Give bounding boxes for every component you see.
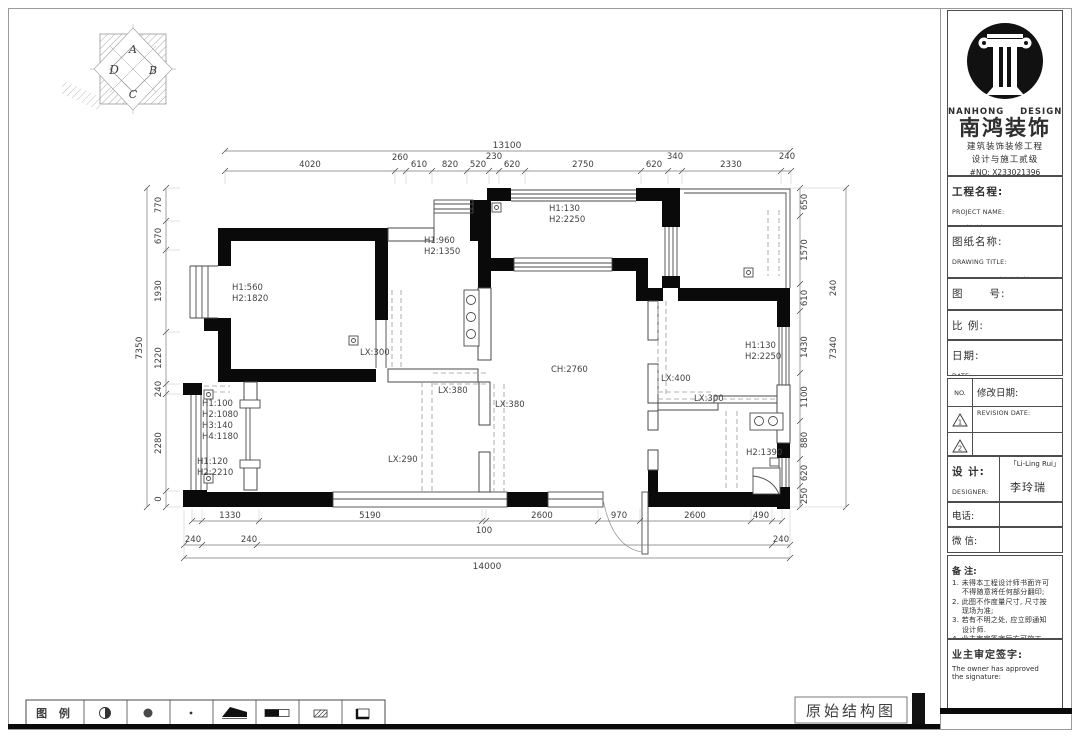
dim-label: 670 <box>154 228 164 244</box>
dim-label: 7350 <box>135 336 145 359</box>
tel-label-cn: 电话: <box>952 511 974 522</box>
note-line: 2. 此图不作度量尺寸, 尺寸按 <box>952 597 1058 606</box>
room-label: H4:1180 <box>202 432 238 442</box>
dim-label: 240 <box>773 535 789 545</box>
room-label: H2:1350 <box>424 247 460 257</box>
dim-label: 770 <box>154 197 164 213</box>
wechat-box: 微 信: WeChat: <box>947 527 1063 553</box>
dim-label: 0 <box>154 496 164 501</box>
nanhong-logo-icon <box>962 19 1048 105</box>
room-label: H1:130 <box>549 204 580 214</box>
drawing-title-box: 图纸名称: DRAWING TITLE: 原始结构图 <box>947 226 1063 278</box>
dim-label: 610 <box>800 290 810 306</box>
dim-label: 1330 <box>219 511 241 521</box>
dim-label: 1930 <box>154 280 164 302</box>
designer-label-cn: 设 计: <box>952 466 985 478</box>
dim-label: 260 <box>392 153 408 163</box>
dim-label: 620 <box>800 465 810 481</box>
project-name-box: 工程名程: PROJECT NAME: 世茂西西湖 <box>947 176 1063 226</box>
note-line: 1. 未得本工程设计师书面许可 <box>952 578 1058 587</box>
dim-label: 340 <box>667 152 683 162</box>
dim-label: 2280 <box>154 432 164 454</box>
walls-light <box>244 228 790 492</box>
legend-bar: 图 例 <box>26 700 385 726</box>
owner-en-2: the signature: <box>952 673 1058 681</box>
room-label: H2:2250 <box>745 352 781 362</box>
owner-en-1: The owner has approved <box>952 665 1058 673</box>
owner-signature-box: 业主审定签字: The owner has approved the signa… <box>947 639 1063 710</box>
dim-label: 1430 <box>800 336 810 358</box>
date-box: 日期: DATE: <box>947 340 1063 376</box>
designer-box: 设 计: DESIGNER: 「Li-Ling Rui」 李玲瑞 <box>947 456 1063 502</box>
revision-row-2: 2 <box>948 432 1062 456</box>
revision-triangle-icon: 2 <box>952 439 968 453</box>
legend-symbol-half-circle <box>100 708 111 719</box>
brand-subtitle-2: 设计与施工贰级 <box>948 153 1062 165</box>
room-label: H1:120 <box>197 457 228 467</box>
dim-label: 880 <box>800 432 810 448</box>
drawing-no-label-cn: 图 号: <box>952 288 1006 300</box>
dim-label: 2600 <box>684 511 706 521</box>
wall-gap <box>663 288 678 301</box>
compass-letter-b: B <box>148 64 157 77</box>
room-label: H2:1820 <box>232 294 268 304</box>
dim-label: 7340 <box>829 336 839 359</box>
date-label-cn: 日期: <box>952 350 980 362</box>
legend-symbol-open-box <box>357 709 369 718</box>
dim-label: 14000 <box>473 562 502 572</box>
designer-name-cn: 李玲瑞 <box>1010 479 1046 495</box>
drawing-title-label-cn: 图纸名称: <box>952 236 1003 248</box>
revision-no-label: NO. <box>954 389 966 397</box>
brand-subtitle-1: 建筑装饰装修工程 <box>948 140 1062 152</box>
legend-symbol-filled-circle <box>144 709 153 718</box>
compass-symbol: A B C D <box>62 24 176 114</box>
beam-label: LX:300 <box>360 348 390 358</box>
designer-name-en: 「Li-Ling Rui」 <box>1010 459 1060 469</box>
drawing-title-label-en: DRAWING TITLE: <box>952 259 1007 266</box>
notes-label: 备 注: <box>952 567 977 577</box>
dim-label: 240 <box>829 280 839 296</box>
dim-label: 2600 <box>531 511 553 521</box>
drawing-title-text: 原始结构图 <box>806 702 896 720</box>
revision-label-cn: 修改日期: <box>977 388 1018 399</box>
svg-text:1: 1 <box>958 418 962 426</box>
telephone-box: 电话: Tel:: <box>947 502 1063 527</box>
note-line: 现场为准; <box>952 606 1058 615</box>
revision-triangle-icon: 1 <box>952 413 968 427</box>
legend-title: 图 例 <box>36 706 74 720</box>
room-label: H2:2250 <box>549 215 585 225</box>
titleblock-bottom-bar <box>940 708 1072 714</box>
compass-letter-c: C <box>129 88 138 101</box>
brand-license-no: #NO: X233021396 <box>948 168 1062 176</box>
dim-label: 240 <box>154 381 164 397</box>
notes-box: 备 注: 1. 未得本工程设计师书面许可 不得随意将任何部分翻印; 2. 此图不… <box>947 555 1063 639</box>
brand-name-cn: 南鸿装饰 <box>948 117 1062 139</box>
dim-label: 620 <box>646 160 662 170</box>
dim-label: 1100 <box>800 386 810 408</box>
dim-label: 620 <box>504 160 520 170</box>
owner-label: 业主审定签字: <box>952 650 1023 661</box>
revision-label-en: REVISION DATE: <box>977 410 1030 417</box>
dim-label: 970 <box>611 511 627 521</box>
scale-box: 比 例: SCALE: 1:60 <box>947 310 1063 340</box>
dim-label: 240 <box>185 535 201 545</box>
bottom-border-bar <box>8 724 940 729</box>
ceiling-height-label: CH:2760 <box>551 365 588 375</box>
beam-label: LX:380 <box>495 400 525 410</box>
dim-label: 2750 <box>572 160 594 170</box>
dim-label: 1220 <box>154 347 164 369</box>
dim-label: 240 <box>241 535 257 545</box>
dim-label: 520 <box>470 160 486 170</box>
dim-label: 2330 <box>720 160 742 170</box>
wechat-label-cn: 微 信: <box>952 536 977 547</box>
beam-label: LX:300 <box>694 394 724 404</box>
note-line: 不得随意将任何部分翻印; <box>952 587 1058 596</box>
date-label-en: DATE: <box>952 373 972 376</box>
dim-label: 610 <box>411 160 427 170</box>
drawing-title-stamp: 原始结构图 <box>795 693 925 724</box>
room-label: H2:1080 <box>202 410 238 420</box>
revision-box: NO. 修改日期: REVISION DATE: 1 2 <box>947 378 1063 456</box>
room-label: H2:1390 <box>746 448 782 458</box>
dim-label: 1570 <box>800 239 810 261</box>
beam-label: LX:380 <box>438 386 468 396</box>
dim-label: 240 <box>779 152 795 162</box>
drawing-no-box: 图 号: DRAWING NO.: P-01 <box>947 278 1063 310</box>
project-label-cn: 工程名程: <box>952 186 1003 198</box>
dim-label: 4020 <box>299 160 321 170</box>
room-label: H1:130 <box>745 341 776 351</box>
compass-letter-a: A <box>128 43 137 56</box>
dim-label: 100 <box>476 526 492 536</box>
designer-label-en: DESIGNER: <box>952 489 988 496</box>
logo-box: NANHONG DESIGN 南鸿装饰 建筑装饰装修工程 设计与施工贰级 #NO… <box>947 10 1063 176</box>
dim-label: 13100 <box>493 141 522 151</box>
svg-text:2: 2 <box>958 444 962 452</box>
dim-label: 5190 <box>359 511 381 521</box>
dim-label: 490 <box>753 511 769 521</box>
dim-label: 230 <box>486 152 502 162</box>
fixtures <box>204 203 783 494</box>
note-line: 设计师. <box>952 625 1058 634</box>
title-end-bar <box>912 693 925 724</box>
dimensions-right <box>790 185 849 510</box>
legend-symbol-half-filled-bar <box>265 710 289 717</box>
dim-label: 650 <box>800 194 810 210</box>
legend-symbol-dot <box>190 712 193 715</box>
beam-label: LX:400 <box>661 374 691 384</box>
room-label: H1:960 <box>424 236 455 246</box>
beam-label: LX:290 <box>388 455 418 465</box>
room-label: H3:140 <box>202 421 233 431</box>
project-label-en: PROJECT NAME: <box>952 209 1004 216</box>
floorplan-drawing: A B C D <box>0 0 940 738</box>
room-label: H2:2210 <box>197 468 233 478</box>
room-label: H1:100 <box>202 399 233 409</box>
note-line: 3. 若有不明之处, 应立即通知 <box>952 615 1058 624</box>
room-label: H1:560 <box>232 283 263 293</box>
compass-letter-d: D <box>108 63 119 77</box>
dim-label: 820 <box>442 160 458 170</box>
legend-symbol-hatched-box <box>314 710 327 717</box>
titleblock-separator <box>940 8 941 729</box>
scale-label-cn: 比 例: <box>952 320 984 332</box>
dim-label: 250 <box>800 488 810 504</box>
